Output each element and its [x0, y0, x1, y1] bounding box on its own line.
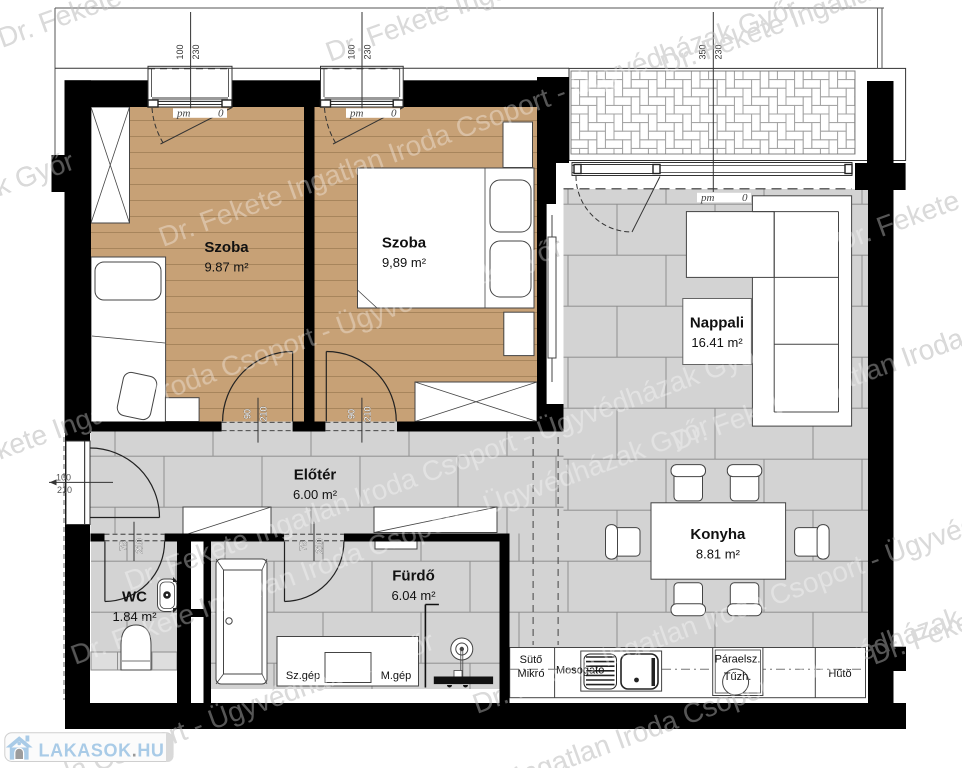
svg-text:0: 0 [742, 192, 748, 204]
svg-text:210: 210 [362, 406, 372, 421]
svg-text:Fürdő: Fürdő [392, 568, 435, 585]
svg-text:Szoba: Szoba [204, 239, 249, 256]
svg-text:9,89 m²: 9,89 m² [382, 255, 427, 270]
svg-text:6.04 m²: 6.04 m² [391, 588, 436, 603]
svg-text:230: 230 [191, 44, 201, 59]
svg-text:75: 75 [298, 541, 308, 551]
svg-text:100: 100 [56, 473, 71, 483]
svg-text:Előtér: Előtér [294, 467, 337, 484]
svg-text:0: 0 [391, 107, 397, 119]
svg-text:Páraelsz.: Páraelsz. [715, 654, 761, 666]
svg-text:pm: pm [349, 107, 364, 119]
svg-text:pm: pm [700, 192, 715, 204]
svg-text:0: 0 [218, 107, 224, 119]
svg-text:90: 90 [346, 409, 356, 419]
svg-text:LAKASOK.HU: LAKASOK.HU [39, 741, 165, 761]
svg-text:pm: pm [176, 107, 191, 119]
svg-text:210: 210 [57, 485, 72, 495]
svg-text:90: 90 [242, 409, 252, 419]
svg-text:8.81 m²: 8.81 m² [696, 547, 741, 562]
svg-text:Konyha: Konyha [690, 526, 746, 543]
svg-text:210: 210 [134, 538, 144, 553]
svg-text:100: 100 [175, 44, 185, 59]
svg-text:75: 75 [118, 541, 128, 551]
svg-text:210: 210 [258, 406, 268, 421]
svg-text:9.87 m²: 9.87 m² [204, 260, 249, 275]
svg-text:Szoba: Szoba [382, 235, 427, 252]
svg-text:Nappali: Nappali [690, 315, 744, 332]
